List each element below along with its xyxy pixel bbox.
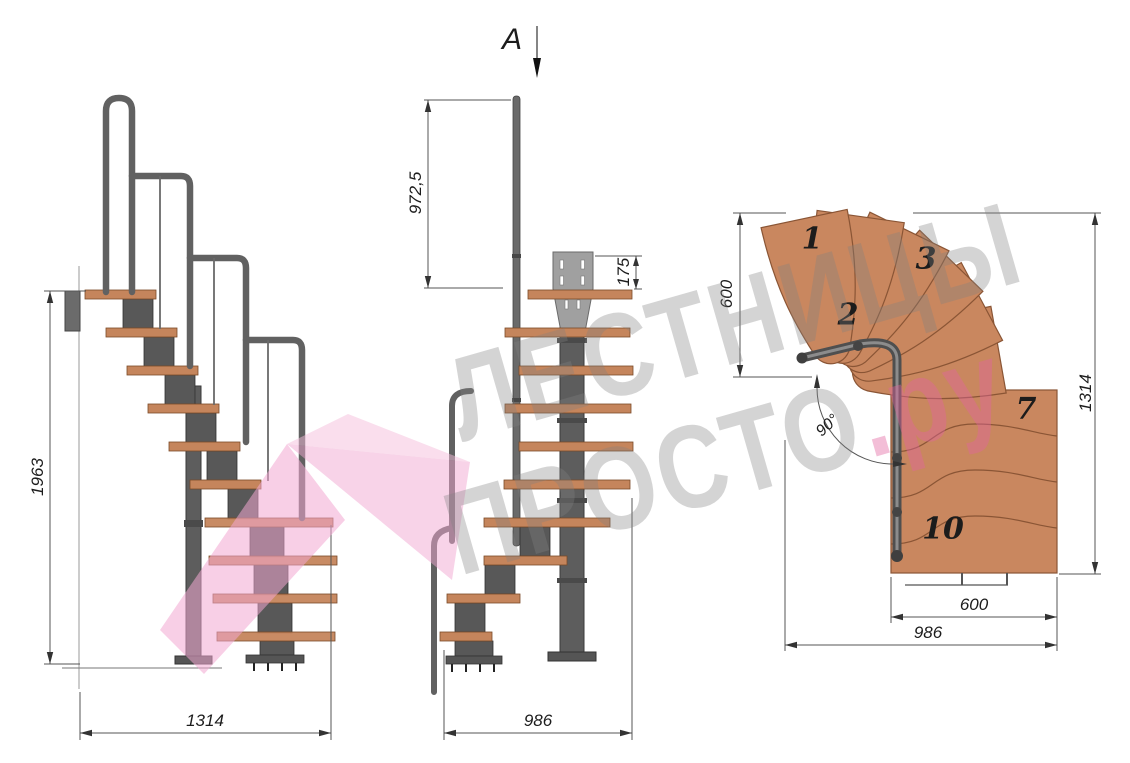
dim-label-1963: 1963: [28, 458, 48, 496]
module-flange: [246, 655, 304, 663]
side-view: [44, 98, 337, 740]
dim-side-height: [44, 291, 86, 664]
dim-label-1314-plan: 1314: [1076, 374, 1096, 412]
pole-flange: [175, 656, 212, 664]
dim-label-600-left: 600: [717, 280, 737, 308]
step-number-3: 3: [916, 242, 937, 277]
tall-post: [513, 96, 520, 546]
dim-label-1314-side: 1314: [186, 711, 224, 731]
dim-rail-height: [424, 100, 511, 288]
step-number-1: 1: [802, 222, 823, 257]
dim-label-986-plan: 986: [914, 623, 942, 643]
section-arrow: [533, 26, 541, 78]
staircase-drawing: [0, 0, 1130, 763]
front-treads: [440, 290, 633, 641]
plan-base-bracket: [905, 573, 1008, 585]
plan-fan-steps: [761, 209, 1006, 418]
front-view: [424, 26, 642, 740]
pole-collar: [184, 520, 203, 527]
dim-label-175: 175: [614, 258, 634, 286]
side-steps-lower: [205, 518, 337, 671]
section-label: A: [502, 23, 522, 57]
central-pole: [560, 300, 584, 654]
dim-label-600-bottom: 600: [960, 595, 988, 615]
dim-label-972-5: 972,5: [406, 172, 426, 215]
dim-label-986-front: 986: [524, 711, 552, 731]
technical-drawing-canvas: A 1963 1314 972,5 175 986 600 1314 600 9…: [0, 0, 1130, 763]
side-steps-upper: [85, 290, 261, 519]
wall-bracket: [65, 291, 80, 331]
step-number-2: 2: [838, 298, 859, 333]
central-pole-flange: [548, 652, 596, 661]
step-number-7: 7: [1016, 392, 1037, 427]
step-number-10: 10: [922, 512, 964, 547]
